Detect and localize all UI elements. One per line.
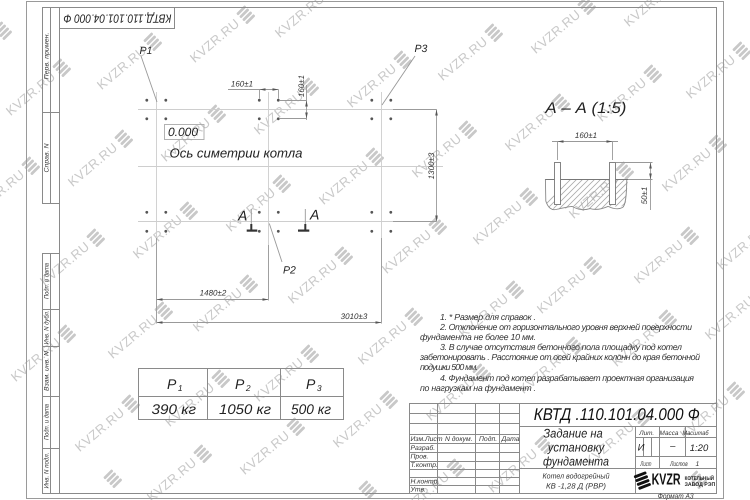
svg-text:Взам. инв. N: Взам. инв. N — [44, 351, 51, 391]
svg-text:фундамента: фундамента — [543, 455, 609, 469]
svg-text:Инв. N подл.: Инв. N подл. — [44, 452, 51, 488]
svg-text:по нагрузкам на фундамент .: по нагрузкам на фундамент . — [420, 383, 536, 393]
svg-text:Лит.: Лит. — [638, 430, 654, 437]
svg-text:KVZR: KVZR — [652, 471, 681, 488]
svg-text:Подп. и дата: Подп. и дата — [44, 404, 51, 440]
svg-text:N докум.: N докум. — [445, 436, 473, 443]
svg-text:160±1: 160±1 — [297, 75, 306, 97]
svg-text:КВ -1,28 Д (РВР): КВ -1,28 Д (РВР) — [546, 482, 606, 491]
svg-text:1:20: 1:20 — [690, 443, 709, 454]
svg-text:160±1: 160±1 — [575, 131, 597, 140]
svg-text:1300±3: 1300±3 — [427, 152, 436, 179]
svg-text:А: А — [309, 207, 319, 223]
svg-text:4. Фундамент под котел разраб: 4. Фундамент под котел разрабатывает про… — [440, 373, 694, 383]
svg-text:P2: P2 — [235, 376, 251, 393]
svg-text:Формат А3: Формат А3 — [658, 491, 695, 500]
svg-text:Изм.Лист: Изм.Лист — [411, 436, 443, 443]
svg-text:Подп.: Подп. — [479, 436, 497, 443]
svg-text:160±1: 160±1 — [231, 80, 253, 89]
svg-text:Н.контр.: Н.контр. — [411, 479, 440, 486]
svg-text:390 кг: 390 кг — [152, 401, 197, 417]
svg-text:1. * Размер для справок .: 1. * Размер для справок . — [440, 312, 536, 322]
svg-text:1050 кг: 1050 кг — [219, 401, 271, 417]
svg-text:КВТД .110.101.04.000 Ф: КВТД .110.101.04.000 Ф — [534, 405, 700, 424]
svg-text:P2: P2 — [283, 265, 296, 277]
svg-text:Т.контр.: Т.контр. — [411, 462, 439, 469]
svg-text:Масса: Масса — [660, 430, 679, 437]
svg-text:установку: установку — [547, 441, 605, 455]
svg-text:50±1: 50±1 — [640, 187, 649, 205]
svg-text:Справ. N: Справ. N — [44, 143, 51, 172]
svg-text:И: И — [638, 443, 645, 454]
svg-text:ЗАВОД РЭП: ЗАВОД РЭП — [685, 482, 716, 488]
svg-text:Утв.: Утв. — [410, 487, 427, 494]
svg-text:0.000: 0.000 — [168, 125, 198, 139]
svg-text:Задание на: Задание на — [543, 427, 603, 441]
svg-text:P1: P1 — [140, 45, 153, 57]
svg-text:Пров.: Пров. — [411, 454, 429, 461]
svg-text:Дата: Дата — [501, 436, 520, 443]
svg-text:3010±3: 3010±3 — [341, 312, 368, 321]
svg-text:P1: P1 — [167, 376, 183, 393]
svg-text:Перв. примен.: Перв. примен. — [44, 32, 51, 79]
svg-text:1480±2: 1480±2 — [200, 289, 227, 298]
svg-text:забетонировать . Расстояние о: забетонировать . Расстояние от осей край… — [419, 352, 700, 362]
svg-text:3. В случае отсутствия бетонн: 3. В случае отсутствия бетонного пола пл… — [440, 342, 682, 352]
svg-text:КВТД.110.101.04.000 Ф: КВТД.110.101.04.000 Ф — [63, 12, 171, 26]
svg-text:Листов: Листов — [669, 461, 688, 468]
svg-text:А – А (1:5): А – А (1:5) — [544, 100, 626, 117]
svg-text:Котел водогрейный: Котел водогрейный — [543, 472, 611, 481]
svg-text:А: А — [237, 208, 247, 224]
svg-text:фундамента не более 10 мм.: фундамента не более 10 мм. — [420, 332, 536, 342]
svg-text:Лист: Лист — [640, 461, 652, 468]
svg-text:КОТЕЛЬНЫЙ: КОТЕЛЬНЫЙ — [685, 475, 715, 482]
svg-text:–: – — [669, 441, 676, 452]
svg-text:подушки 500 мм.: подушки 500 мм. — [420, 362, 478, 372]
svg-text:Подп. и дата: Подп. и дата — [44, 263, 51, 299]
svg-text:P3: P3 — [415, 43, 428, 55]
svg-text:P3: P3 — [306, 376, 322, 393]
svg-text:Ось симетрии котла: Ось симетрии котла — [170, 146, 303, 161]
svg-text:Инв. N дубл.: Инв. N дубл. — [44, 310, 51, 344]
svg-text:1: 1 — [696, 461, 700, 468]
svg-text:Масштаб: Масштаб — [683, 430, 709, 437]
svg-text:500 кг: 500 кг — [291, 401, 331, 417]
svg-text:2. Отклонение от горизонтальн: 2. Отклонение от горизонтального уровня … — [439, 322, 692, 332]
svg-text:Разраб.: Разраб. — [411, 445, 436, 452]
